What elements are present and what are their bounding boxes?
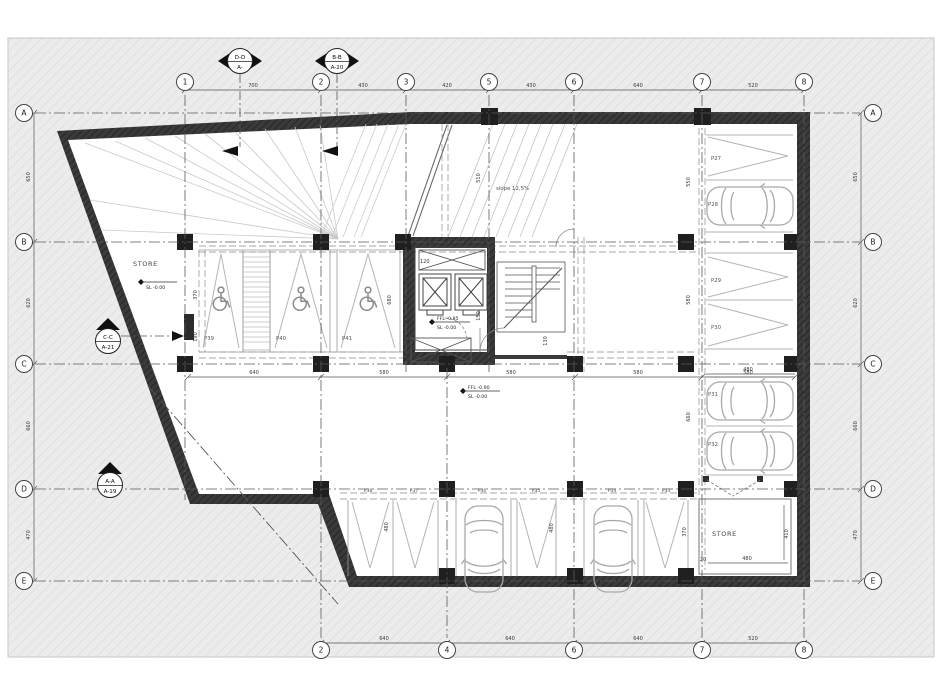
dim-aisle: 580 bbox=[743, 370, 753, 376]
grid-bubble-label: D bbox=[21, 485, 27, 494]
grid-bubble-label: C bbox=[21, 360, 26, 369]
dim-bottom: 640 bbox=[505, 636, 515, 642]
parking-label: P41 bbox=[342, 336, 352, 342]
dim-left: 650 bbox=[26, 172, 32, 182]
parking-label: P32 bbox=[708, 442, 718, 448]
dim-20: 20 bbox=[700, 557, 706, 563]
parking-label: P40 bbox=[276, 336, 287, 342]
grid-bubble-label: 7 bbox=[700, 646, 705, 655]
dim-aisle: 580 bbox=[506, 370, 516, 376]
dim-480: 480 bbox=[384, 522, 390, 532]
level-text: FFL -0.90 bbox=[468, 385, 490, 391]
section-label: D-D bbox=[235, 55, 246, 61]
dim-bottom: 520 bbox=[748, 636, 758, 642]
room-label: STORE bbox=[712, 530, 737, 538]
dim-410: 410 bbox=[784, 529, 790, 539]
grid-bubble-label: 4 bbox=[445, 646, 450, 655]
dim-580: 580 bbox=[686, 295, 692, 305]
dim-370: 370 bbox=[193, 290, 199, 300]
dim-top: 430 bbox=[526, 83, 536, 89]
level-text: SL -0.00 bbox=[146, 285, 165, 291]
dim-top: 520 bbox=[748, 83, 758, 89]
dim-aisle: 580 bbox=[379, 370, 389, 376]
grid-bubble-label: 1 bbox=[183, 78, 188, 87]
level-text: SL -0.00 bbox=[437, 325, 456, 331]
room-label: STORE bbox=[133, 260, 158, 268]
grid-bubble-label: 8 bbox=[802, 78, 807, 87]
grid-bubble-label: A bbox=[21, 109, 27, 118]
level-text: FFL -0.85 bbox=[437, 316, 459, 322]
section-label: A- bbox=[237, 65, 243, 71]
dim-550: 550 bbox=[686, 177, 692, 187]
dim-150: 150 bbox=[476, 311, 482, 321]
dim-top: 640 bbox=[633, 83, 643, 89]
dim-660: 660 bbox=[686, 412, 692, 422]
dim-ramp-510: 510 bbox=[476, 173, 482, 183]
section-label: A-20 bbox=[331, 65, 344, 71]
grid-bubble-label: D bbox=[870, 485, 876, 494]
section-label: A-A bbox=[105, 479, 115, 485]
dim-190: 190 bbox=[193, 332, 199, 342]
dim-left: 470 bbox=[26, 530, 32, 540]
grid-bubble-label: 5 bbox=[487, 78, 492, 87]
grid-bubble-label: B bbox=[870, 238, 875, 247]
dim-top: 700 bbox=[248, 83, 258, 89]
dim-right: 660 bbox=[853, 421, 859, 431]
grid-bubble-label: E bbox=[22, 577, 27, 586]
ramp-slope-label: slope 12,5% bbox=[496, 186, 529, 192]
grid-bubble-label: 6 bbox=[572, 646, 577, 655]
grid-bubble-label: E bbox=[871, 577, 876, 586]
parking-label: P27 bbox=[711, 156, 721, 162]
dim-aisle: 640 bbox=[249, 370, 259, 376]
parking-label: P39 bbox=[204, 336, 214, 342]
dim-370: 370 bbox=[682, 527, 688, 537]
dim-top: 420 bbox=[442, 83, 452, 89]
grid-bubble-label: 8 bbox=[802, 646, 807, 655]
grid-bubble-label: 6 bbox=[572, 78, 577, 87]
level-text: SL -0.00 bbox=[468, 394, 487, 400]
dim-right: 620 bbox=[853, 298, 859, 308]
grid-bubble-label: C bbox=[870, 360, 875, 369]
floor-plan-canvas: slope 12,5% 510 bbox=[0, 0, 942, 681]
grid-bubble-label: 2 bbox=[319, 646, 324, 655]
section-label: C-C bbox=[103, 335, 113, 341]
parking-label: P29 bbox=[711, 278, 721, 284]
dim-right: 470 bbox=[853, 530, 859, 540]
dim-top: 430 bbox=[358, 83, 368, 89]
dim-right: 650 bbox=[853, 172, 859, 182]
grid-bubble-label: B bbox=[21, 238, 26, 247]
dim-left: 620 bbox=[26, 298, 32, 308]
grid-bubble-label: A bbox=[870, 109, 876, 118]
parking-label: P31 bbox=[708, 392, 718, 398]
parking-label: P28 bbox=[708, 202, 719, 208]
dim-130: 130 bbox=[543, 336, 549, 346]
dim-120: 120 bbox=[420, 259, 430, 265]
grid-bubble-label: 7 bbox=[700, 78, 705, 87]
section-label: A-21 bbox=[102, 345, 115, 351]
dim-480: 480 bbox=[549, 523, 555, 533]
dim-480: 480 bbox=[742, 556, 752, 562]
section-label: B-B bbox=[332, 55, 342, 61]
parking-label: P30 bbox=[711, 325, 722, 331]
grid-bubble-label: 2 bbox=[319, 78, 324, 87]
dim-aisle: 580 bbox=[633, 370, 643, 376]
section-label: A-19 bbox=[104, 489, 117, 495]
dim-left: 660 bbox=[26, 421, 32, 431]
dim-bottom: 640 bbox=[633, 636, 643, 642]
dim-680: 680 bbox=[387, 295, 393, 305]
dim-bottom: 640 bbox=[379, 636, 389, 642]
grid-bubble-label: 3 bbox=[404, 78, 409, 87]
